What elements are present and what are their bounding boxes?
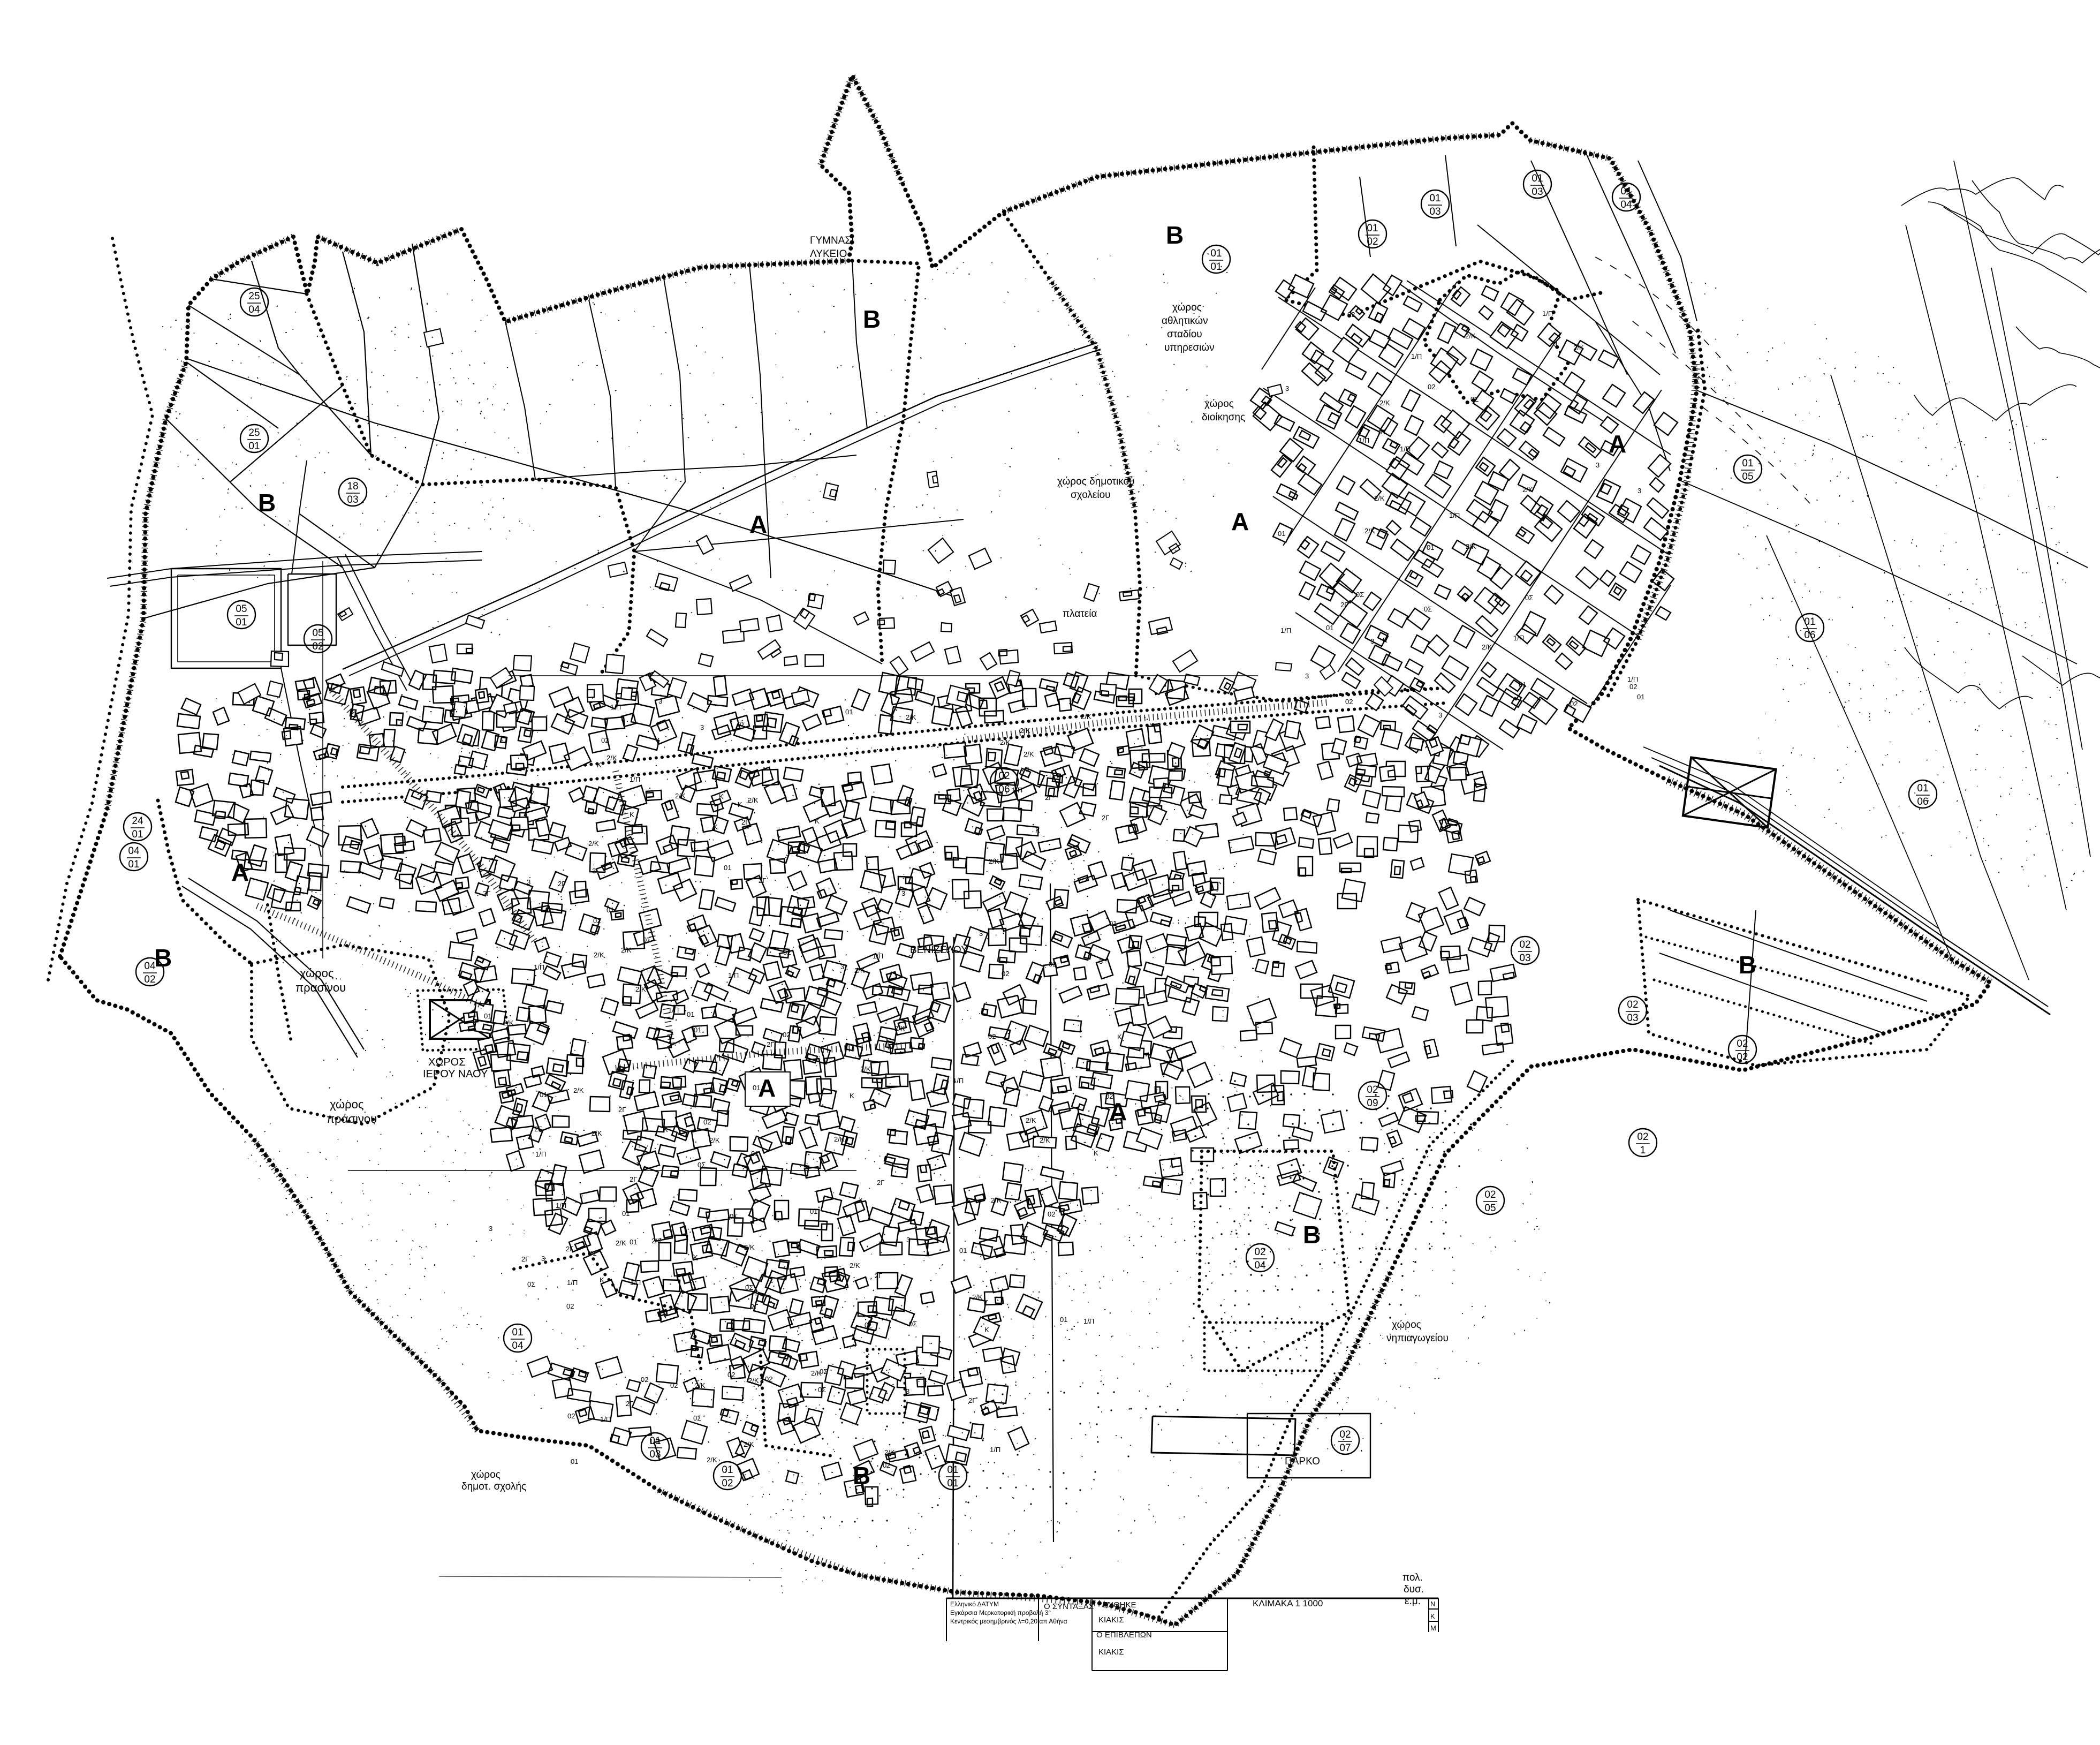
svg-text:1/Π: 1/Π [556,1202,566,1210]
svg-text:διοίκησης: διοίκησης [1202,412,1245,423]
svg-text:3: 3 [1553,340,1557,348]
svg-text:2/K: 2/K [635,985,646,993]
svg-text:0Σ: 0Σ [730,1212,738,1220]
svg-text:πρασίνου: πρασίνου [295,981,346,994]
svg-text:2/K: 2/K [1000,738,1011,746]
svg-text:2Γ: 2Γ [877,1179,884,1187]
svg-text:Κ: Κ [984,1326,989,1334]
svg-text:01: 01 [1060,1316,1067,1324]
svg-text:01: 01 [687,1010,694,1018]
svg-text:A: A [758,1074,776,1102]
svg-text:ΕΧΘΗΚΕ: ΕΧΘΗΚΕ [1103,1600,1136,1610]
svg-text:01: 01 [540,1091,547,1099]
svg-text:02: 02 [312,641,323,652]
svg-text:02: 02 [1105,1092,1113,1100]
svg-text:02: 02 [703,1118,711,1126]
svg-text:2/K: 2/K [972,1293,983,1301]
svg-text:2/K: 2/K [748,1377,759,1385]
svg-text:1/Π: 1/Π [1542,309,1553,318]
svg-text:Κ: Κ [600,1276,604,1284]
svg-text:02: 02 [1048,1210,1055,1218]
svg-text:0Σ: 0Σ [818,1386,826,1394]
svg-text:2/K: 2/K [989,857,999,865]
svg-text:2Γ: 2Γ [626,1400,633,1408]
svg-text:04: 04 [144,961,156,972]
svg-text:01: 01 [1326,624,1333,632]
svg-text:2Γ: 2Γ [1340,601,1348,609]
svg-text:Ο ΕΠΙΒΛΕΠΩΝ: Ο ΕΠΙΒΛΕΠΩΝ [1096,1630,1152,1640]
svg-text:01: 01 [128,859,139,870]
svg-text:πράσινου: πράσινου [327,1112,377,1125]
svg-text:σχολείου: σχολείου [1071,489,1111,501]
svg-text:02: 02 [1737,1038,1748,1049]
svg-text:1/Π: 1/Π [600,1415,611,1423]
svg-text:Κ: Κ [713,823,718,831]
svg-text:0Σ: 0Σ [865,1321,873,1329]
svg-text:0Σ: 0Σ [693,1414,701,1422]
svg-text:01: 01 [1109,919,1117,927]
svg-text:0Σ: 0Σ [737,720,745,728]
svg-text:01: 01 [694,1026,701,1034]
svg-text:09: 09 [1367,1098,1378,1109]
svg-text:Κ: Κ [1383,636,1388,644]
svg-text:3: 3 [1438,711,1442,719]
svg-text:2/K: 2/K [594,951,604,959]
svg-text:02: 02 [601,736,609,744]
svg-text:2Γ: 2Γ [759,877,766,885]
svg-text:02: 02 [1345,698,1353,706]
svg-text:Κ: Κ [1094,1149,1098,1157]
svg-text:01: 01 [724,864,731,872]
svg-text:1/Π: 1/Π [630,775,640,783]
svg-text:02: 02 [783,948,791,956]
svg-text:0Σ: 0Σ [909,1320,917,1328]
svg-text:2/K: 2/K [854,966,865,975]
svg-text:2/K: 2/K [1026,1116,1036,1124]
svg-text:01: 01 [845,708,853,716]
svg-text:01: 01 [607,906,614,914]
svg-text:0Σ: 0Σ [1525,594,1533,602]
svg-text:2/K: 2/K [884,1448,895,1456]
svg-text:01: 01 [484,1012,491,1020]
svg-text:0Σ: 0Σ [1424,605,1432,613]
svg-text:ΠΑΡΚΟ: ΠΑΡΚΟ [1285,1456,1320,1467]
svg-text:ΓΥΜΝΑΣΙ: ΓΥΜΝΑΣΙ [810,235,854,246]
svg-text:1/Π: 1/Π [1359,436,1369,444]
svg-text:3: 3 [1099,957,1103,965]
svg-text:2/K: 2/K [651,1237,662,1245]
svg-text:2Γ: 2Γ [750,1303,758,1311]
svg-text:02: 02 [1737,1052,1748,1063]
svg-text:2Γ: 2Γ [1102,814,1109,822]
svg-text:Κ: Κ [815,817,820,825]
svg-text:01: 01 [810,1207,817,1215]
svg-text:02: 02 [144,974,155,985]
svg-text:Κ: Κ [719,792,724,800]
svg-text:1/Π: 1/Π [873,952,883,960]
svg-text:Κεντρικός μεσημβρινός λ=0,20 α: Κεντρικός μεσημβρινός λ=0,20 απ Αθήνα [950,1618,1067,1625]
svg-text:02: 02 [1637,1131,1648,1143]
svg-text:01: 01 [571,1457,578,1466]
svg-text:B: B [258,489,276,517]
svg-text:2/K: 2/K [707,1456,717,1464]
svg-text:2/K: 2/K [906,713,916,721]
svg-text:δημοτ. σχολής: δημοτ. σχολής [461,1481,526,1492]
svg-text:ΧΩΡΟΣ: ΧΩΡΟΣ [428,1056,466,1068]
svg-text:χώρος: χώρος [330,1098,364,1111]
svg-text:01: 01 [1378,428,1386,436]
svg-text:ΚΙΑΚΙΣ: ΚΙΑΚΙΣ [1098,1615,1124,1625]
svg-text:03: 03 [1429,206,1441,217]
svg-text:02: 02 [1049,960,1056,968]
svg-text:2/K: 2/K [709,1136,720,1144]
svg-text:01: 01 [236,617,247,628]
svg-text:0Σ: 0Σ [1356,591,1364,599]
svg-text:01: 01 [1429,193,1441,204]
svg-text:3: 3 [1285,384,1289,392]
svg-text:πολ.: πολ. [1402,1572,1423,1583]
svg-text:25: 25 [248,291,260,302]
svg-text:χώρος: χώρος [1172,302,1202,313]
svg-text:01: 01 [1532,173,1543,184]
svg-text:2/K: 2/K [503,1019,514,1027]
svg-text:χώρος: χώρος [471,1469,501,1480]
svg-text:01: 01 [947,1464,958,1476]
svg-text:01: 01 [753,1084,760,1092]
svg-text:06: 06 [998,784,1010,795]
svg-text:1/Π: 1/Π [728,971,739,979]
svg-text:2/K: 2/K [744,1243,755,1251]
svg-text:1/Π: 1/Π [649,1438,660,1446]
svg-text:1/Π: 1/Π [1411,352,1422,360]
svg-text:2/K: 2/K [607,754,617,762]
svg-text:A: A [1609,430,1626,458]
svg-text:2/K: 2/K [1465,332,1476,340]
svg-text:02: 02 [1002,970,1009,978]
svg-text:χώρος δημοτικού: χώρος δημοτικού [1057,476,1134,487]
svg-text:01: 01 [248,441,260,452]
svg-text:B: B [863,305,881,333]
svg-text:04: 04 [1620,199,1632,210]
svg-text:3: 3 [658,697,662,705]
svg-text:1/Π: 1/Π [1400,445,1411,453]
svg-text:3: 3 [901,889,905,897]
svg-text:Ελληνικό ΔΑΤΥΜ: Ελληνικό ΔΑΤΥΜ [950,1600,999,1608]
svg-text:Κ: Κ [1035,826,1040,834]
svg-text:Κ: Κ [663,1125,668,1134]
svg-text:1/Π: 1/Π [1083,1317,1094,1325]
svg-text:3: 3 [906,1387,909,1395]
svg-text:01: 01 [1427,543,1434,552]
svg-text:3: 3 [489,1225,492,1233]
svg-text:3: 3 [527,878,530,886]
svg-text:Κ: Κ [630,811,634,819]
svg-text:02: 02 [988,1032,996,1040]
svg-text:06: 06 [1917,796,1928,807]
svg-text:2/K: 2/K [1522,486,1533,494]
svg-text:2/K: 2/K [991,1196,1002,1204]
svg-text:3: 3 [592,867,596,875]
svg-text:02: 02 [727,1371,735,1379]
svg-text:1/Π: 1/Π [1012,786,1022,794]
svg-text:05: 05 [312,628,323,639]
svg-text:06: 06 [1804,630,1815,641]
svg-text:0Σ: 0Σ [593,917,601,925]
svg-text:02: 02 [722,1478,733,1489]
svg-text:02: 02 [1570,700,1578,708]
svg-text:Κ: Κ [945,946,950,954]
svg-text:2Γ: 2Γ [483,889,490,897]
svg-text:δυσ.: δυσ. [1404,1584,1424,1595]
svg-text:2Γ: 2Γ [767,1040,774,1048]
svg-text:1/Π: 1/Π [1280,626,1291,634]
svg-text:3: 3 [1370,637,1374,645]
svg-text:02: 02 [1627,999,1638,1010]
svg-text:1/Π: 1/Π [1627,675,1638,683]
svg-text:2/K: 2/K [621,946,632,954]
svg-text:3: 3 [541,1255,545,1263]
svg-text:03: 03 [1519,953,1530,964]
svg-text:2/K: 2/K [588,840,599,848]
svg-text:01: 01 [630,1238,637,1246]
svg-text:2/K: 2/K [1364,527,1375,535]
svg-text:01: 01 [1917,783,1928,794]
svg-text:σταδίου: σταδίου [1167,329,1202,340]
svg-text:02: 02 [1339,1429,1351,1440]
svg-text:0Σ: 0Σ [1470,395,1479,403]
svg-text:1/Π: 1/Π [990,1446,1000,1454]
svg-text:02: 02 [783,1031,790,1039]
svg-text:Κ: Κ [693,1253,698,1261]
svg-text:3: 3 [840,963,844,971]
svg-text:2/K: 2/K [811,1369,822,1377]
svg-text:Ο ΣΥΝΤΑΞΑΣ: Ο ΣΥΝΤΑΞΑΣ [1044,1602,1094,1611]
svg-text:2/K: 2/K [744,1440,754,1448]
svg-text:2Γ: 2Γ [558,880,565,888]
svg-text:A: A [1231,508,1249,535]
svg-text:01: 01 [589,1249,596,1257]
svg-text:2/K: 2/K [1081,713,1091,721]
svg-text:04: 04 [512,1340,524,1351]
svg-text:02: 02 [1367,1084,1378,1096]
svg-text:05: 05 [236,603,247,615]
svg-text:Κ: Κ [738,800,742,809]
svg-text:24: 24 [132,815,143,827]
svg-text:02: 02 [641,1376,648,1384]
svg-text:ΚΙΑΚΙΣ: ΚΙΑΚΙΣ [1098,1648,1124,1657]
svg-text:χώρος: χώρος [300,966,334,980]
svg-text:03: 03 [347,494,358,505]
svg-text:2/K: 2/K [1466,542,1476,550]
svg-text:3: 3 [906,1236,910,1244]
svg-text:02: 02 [1428,383,1435,391]
svg-text:Ν: Ν [1430,1600,1435,1608]
svg-text:2/K: 2/K [592,1129,602,1137]
svg-text:3: 3 [507,795,511,803]
svg-text:2Γ: 2Γ [875,1272,882,1280]
svg-text:B: B [853,1462,870,1490]
svg-text:2/K: 2/K [748,796,759,804]
svg-text:01: 01 [1210,261,1222,273]
svg-text:04: 04 [128,845,140,857]
svg-text:0Σ: 0Σ [527,1280,535,1288]
svg-text:1/Π: 1/Π [1513,634,1524,642]
svg-text:03: 03 [649,1449,661,1460]
svg-text:1/Π: 1/Π [668,1006,679,1014]
svg-text:ΚΛΙΜΑΚΑ 1 1000: ΚΛΙΜΑΚΑ 1 1000 [1253,1598,1323,1608]
svg-text:02: 02 [1484,1189,1496,1200]
svg-text:2/K: 2/K [834,1135,845,1143]
svg-text:04: 04 [1254,1260,1266,1271]
svg-text:2/K: 2/K [1024,750,1034,758]
svg-text:Κ: Κ [850,1092,854,1100]
svg-text:01: 01 [1278,530,1285,538]
svg-text:0Σ: 0Σ [643,936,651,944]
svg-text:3: 3 [700,723,704,731]
svg-text:χώρος: χώρος [1204,398,1234,410]
svg-text:1/Π: 1/Π [953,1077,964,1085]
svg-text:01: 01 [947,1478,958,1489]
svg-text:02: 02 [883,1461,890,1469]
svg-text:2/K: 2/K [1573,344,1584,352]
svg-text:2Γ: 2Γ [618,1106,626,1114]
svg-text:18: 18 [347,481,358,492]
svg-text:Μ: Μ [1430,1624,1436,1632]
svg-text:01: 01 [1637,693,1644,701]
svg-text:3: 3 [1305,672,1309,680]
svg-text:01: 01 [959,1247,967,1255]
svg-text:2Γ: 2Γ [521,1255,529,1263]
svg-text:01: 01 [512,1327,523,1338]
svg-text:02: 02 [1367,236,1378,247]
svg-text:αθλητικών: αθλητικών [1162,315,1208,327]
svg-text:01: 01 [1519,681,1526,689]
svg-text:0Σ: 0Σ [698,1161,706,1169]
svg-text:2/K: 2/K [675,792,686,800]
svg-text:Κ: Κ [1117,1033,1122,1041]
svg-text:1/Π: 1/Π [535,1150,546,1158]
svg-text:2/K: 2/K [573,1086,584,1094]
svg-text:2/K: 2/K [616,1239,626,1247]
svg-text:Εγκάρσια Μερκατορική προβολή 3: Εγκάρσια Μερκατορική προβολή 3° [950,1609,1051,1616]
svg-text:2Γ: 2Γ [1045,794,1052,802]
svg-text:01: 01 [1210,248,1222,259]
svg-text:0Σ: 0Σ [745,1283,753,1291]
svg-text:03: 03 [1627,1013,1638,1024]
svg-text:2/K: 2/K [1040,1136,1050,1144]
svg-text:1: 1 [1640,1145,1646,1156]
svg-text:02: 02 [566,1302,574,1310]
svg-text:1/Π: 1/Π [567,1279,578,1287]
svg-text:01: 01 [622,1210,630,1218]
svg-text:Κ: Κ [1430,1612,1435,1620]
svg-text:2Γ: 2Γ [968,1396,976,1404]
svg-text:3: 3 [1025,765,1029,773]
svg-text:1/Π: 1/Π [1449,511,1460,519]
svg-text:2/K: 2/K [1482,643,1492,651]
svg-text:A: A [1109,1098,1127,1125]
svg-text:1/Π: 1/Π [630,1279,641,1287]
svg-text:B: B [1166,221,1184,249]
svg-text:01: 01 [1367,223,1378,234]
svg-text:02: 02 [998,770,1010,782]
svg-text:ΒΕΝΙΖΕΛΟΥ: ΒΕΝΙΖΕΛΟΥ [910,945,968,956]
svg-text:1/Π: 1/Π [610,703,621,711]
svg-text:2Γ: 2Γ [630,1175,637,1183]
svg-text:A: A [749,510,767,538]
svg-text:2/K: 2/K [894,1024,905,1032]
svg-text:2/K: 2/K [1020,727,1030,735]
svg-text:2Γ: 2Γ [534,1125,542,1133]
svg-text:03: 03 [1532,186,1543,198]
svg-text:χώρος: χώρος [1392,1319,1421,1331]
svg-text:02: 02 [1254,1247,1265,1258]
svg-text:1/Π: 1/Π [534,963,544,971]
svg-text:B: B [1303,1221,1321,1249]
svg-text:25: 25 [248,427,260,439]
svg-text:3: 3 [979,930,983,938]
svg-text:υπηρεσιών: υπηρεσιών [1164,342,1215,353]
svg-text:02: 02 [1629,683,1637,691]
svg-text:02: 02 [670,1381,678,1389]
svg-text:3: 3 [1637,487,1641,495]
svg-text:νηπιαγωγείου: νηπιαγωγείου [1386,1333,1449,1344]
svg-text:07: 07 [1339,1442,1351,1454]
svg-text:πλατεία: πλατεία [1063,608,1097,620]
svg-text:02: 02 [1347,311,1355,319]
svg-text:2/K: 2/K [695,1381,706,1389]
svg-text:01: 01 [1742,458,1753,469]
svg-text:01: 01 [1620,186,1632,197]
svg-text:A: A [231,858,249,886]
svg-text:05: 05 [1742,471,1753,482]
svg-text:3: 3 [1596,461,1599,469]
svg-text:02: 02 [1519,939,1530,950]
svg-text:ε.μ.: ε.μ. [1405,1596,1421,1607]
svg-text:2/K: 2/K [850,1261,860,1270]
svg-text:B: B [1739,951,1756,979]
svg-text:01: 01 [751,1150,759,1158]
svg-text:Κ: Κ [597,761,602,769]
svg-text:05: 05 [1484,1203,1496,1214]
svg-text:01: 01 [1804,616,1815,628]
svg-text:2/K: 2/K [860,1065,871,1073]
svg-text:02: 02 [765,1375,772,1383]
svg-text:04: 04 [248,304,260,315]
svg-text:2/K: 2/K [1379,399,1390,407]
svg-text:01: 01 [722,1464,733,1476]
svg-text:02: 02 [567,1412,575,1420]
svg-text:2/K: 2/K [1374,494,1385,502]
svg-text:2Γ: 2Γ [566,1245,573,1253]
svg-text:01: 01 [132,829,143,840]
svg-text:2Γ: 2Γ [741,818,749,826]
svg-text:ΛΥΚΕΙΟ: ΛΥΚΕΙΟ [810,248,847,260]
